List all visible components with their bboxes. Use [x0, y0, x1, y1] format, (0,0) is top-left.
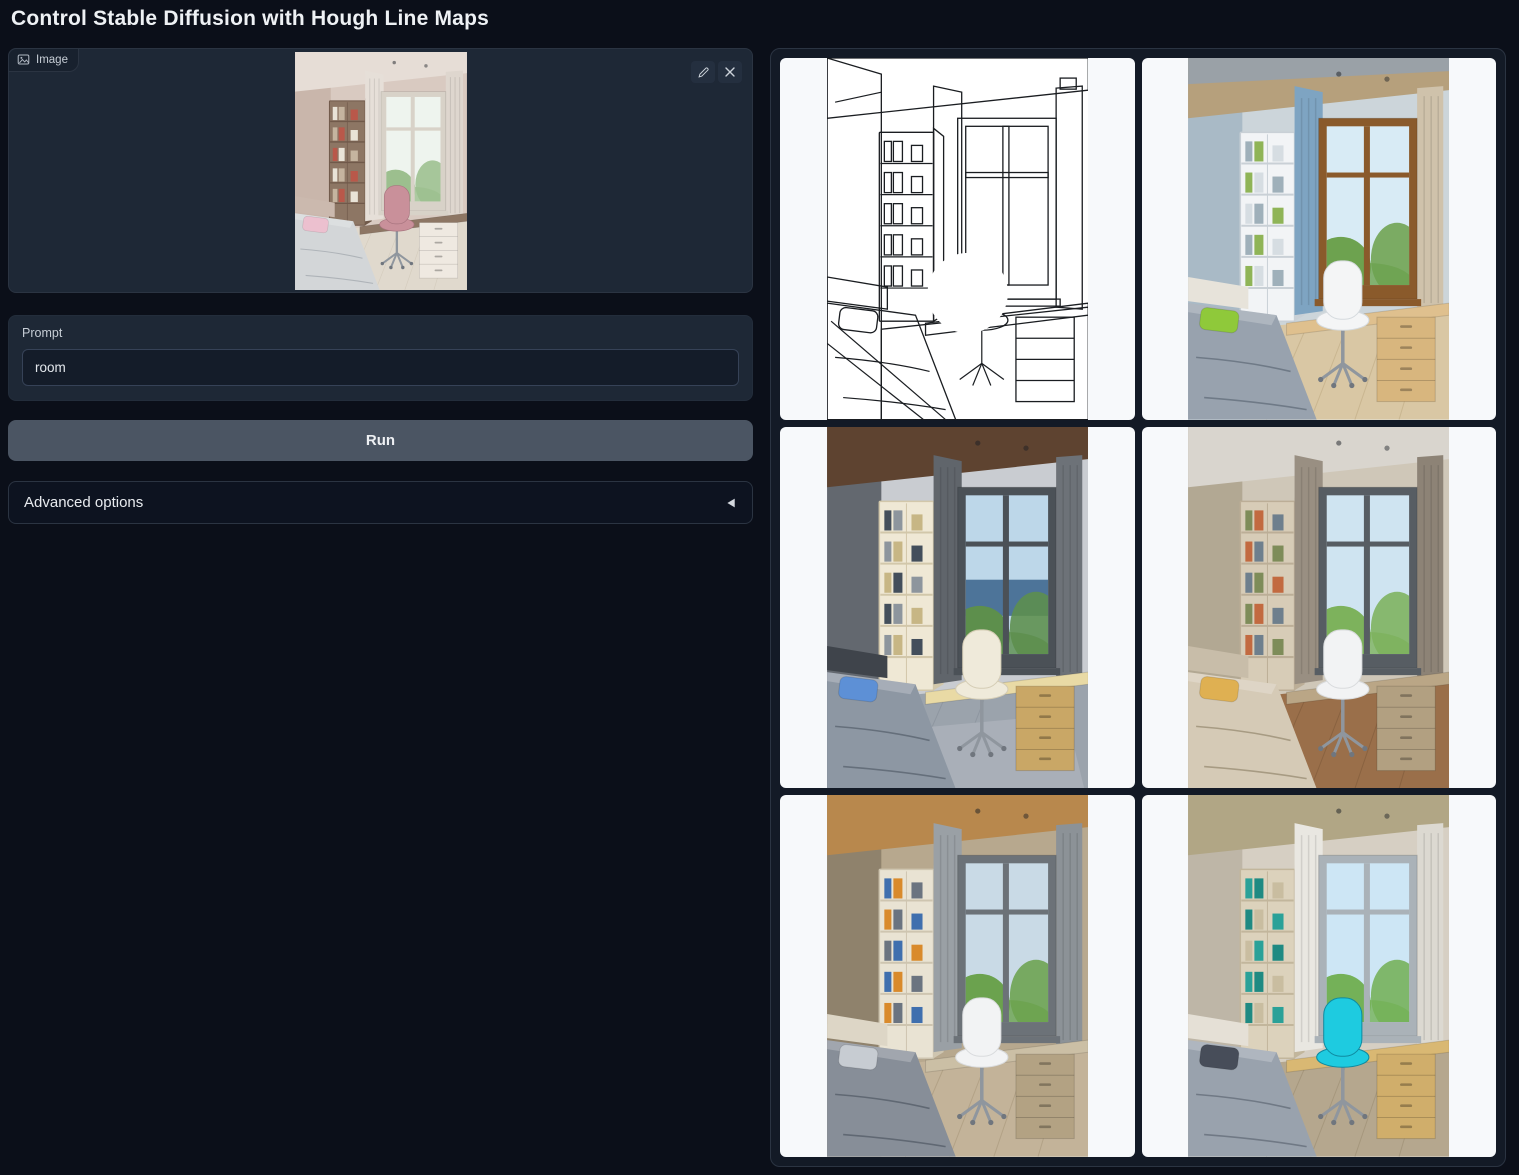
- advanced-options-accordion[interactable]: Advanced options: [8, 481, 753, 524]
- hough-line-map: [827, 58, 1088, 420]
- output-gallery: [770, 48, 1506, 1167]
- image-input-panel[interactable]: Image: [8, 48, 753, 293]
- gallery-item-4[interactable]: [1142, 427, 1497, 789]
- app-title: Control Stable Diffusion with Hough Line…: [11, 7, 489, 31]
- input-column: Image Prompt Run Adv: [8, 48, 753, 524]
- advanced-options-label: Advanced options: [24, 494, 143, 511]
- prompt-block: Prompt: [8, 315, 753, 401]
- edit-image-button[interactable]: [691, 61, 715, 83]
- generated-room-5: [1188, 795, 1449, 1157]
- pencil-icon: [697, 66, 710, 79]
- image-input-label-text: Image: [36, 54, 68, 66]
- image-icon: [17, 53, 30, 66]
- generated-room-3: [1188, 427, 1449, 789]
- clear-image-button[interactable]: [718, 61, 742, 83]
- uploaded-image: [295, 52, 467, 290]
- generated-room-2: [827, 427, 1088, 789]
- run-button[interactable]: Run: [8, 420, 753, 461]
- prompt-input[interactable]: [22, 349, 739, 386]
- generated-room-4: [827, 795, 1088, 1157]
- uploaded-room-photo: [295, 52, 467, 290]
- generated-room-1: [1188, 58, 1449, 420]
- gallery-item-2[interactable]: [1142, 58, 1497, 420]
- image-input-actions: [691, 61, 742, 83]
- collapse-arrow-icon: [726, 497, 737, 509]
- gallery-item-1[interactable]: [780, 58, 1135, 420]
- close-icon: [724, 66, 736, 78]
- prompt-label: Prompt: [22, 326, 739, 340]
- gallery-item-6[interactable]: [1142, 795, 1497, 1157]
- image-input-label: Image: [9, 49, 79, 72]
- gallery-item-5[interactable]: [780, 795, 1135, 1157]
- gallery-item-3[interactable]: [780, 427, 1135, 789]
